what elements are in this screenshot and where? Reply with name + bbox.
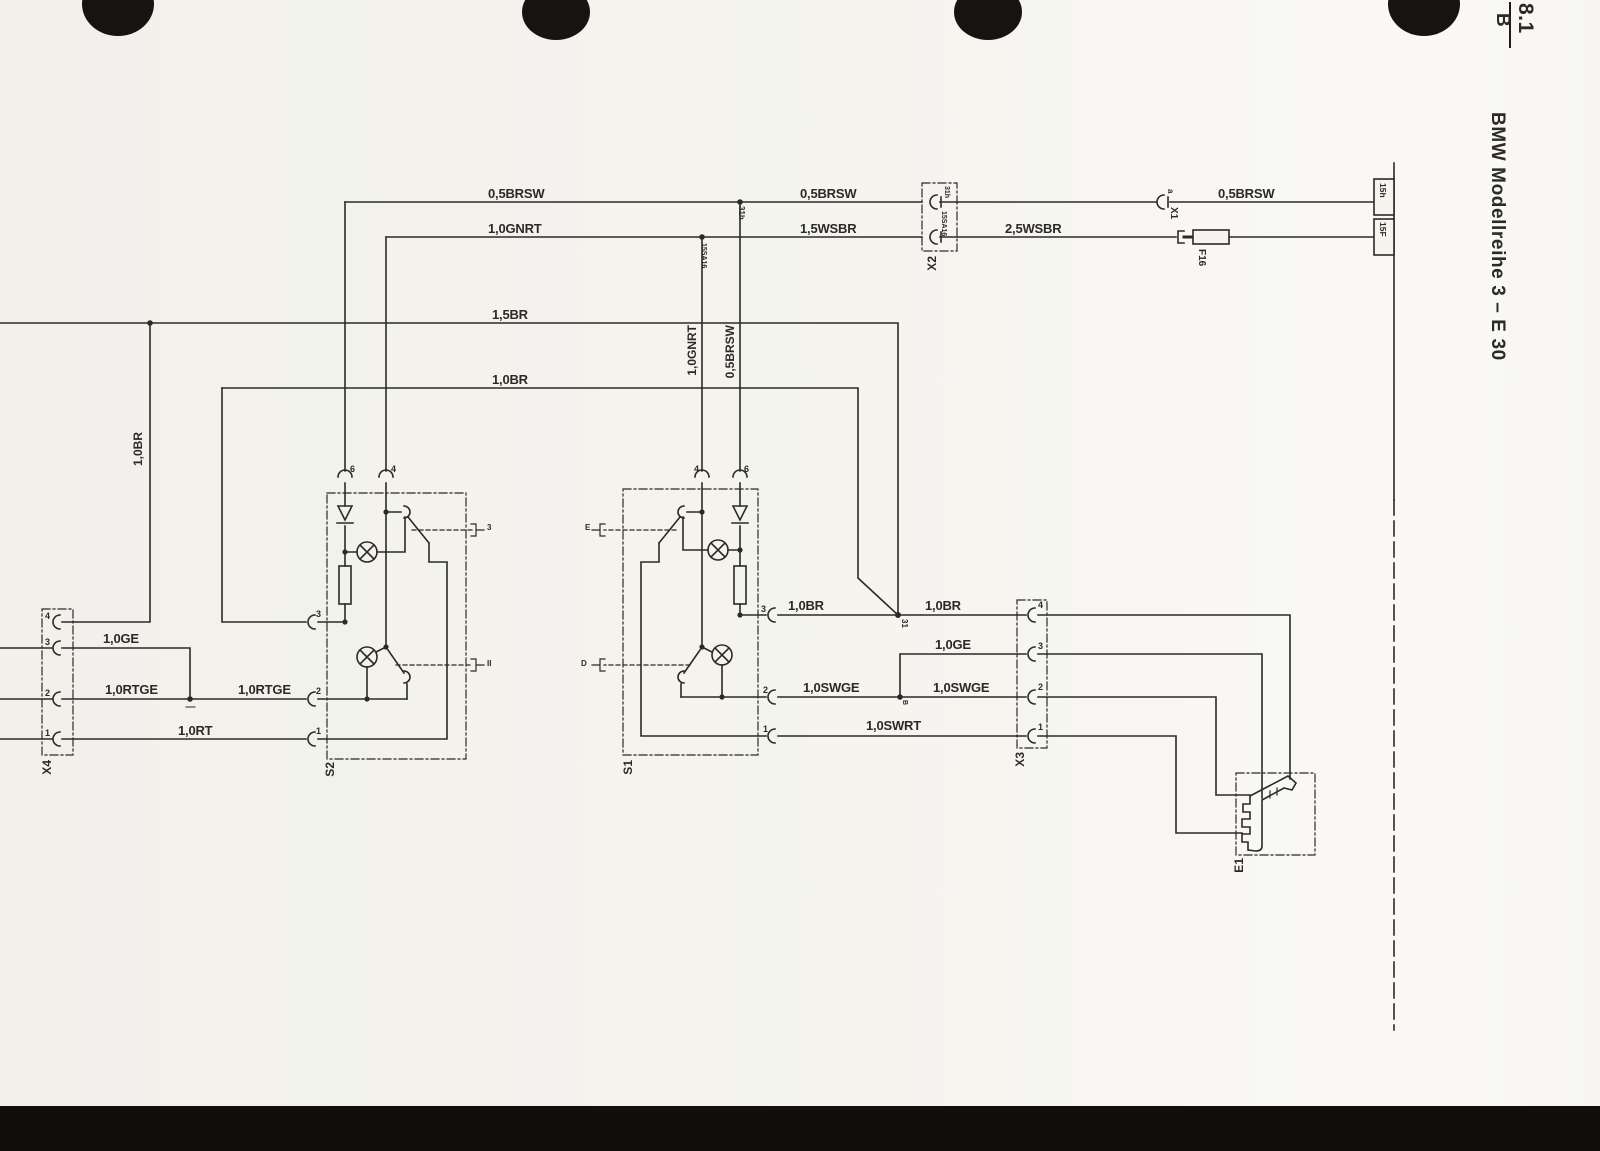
pin-number-x3-2: 2 [1038,682,1043,692]
connector-x3-label: X3 [1013,752,1027,767]
switch-s2-label: S2 [323,762,337,777]
code-15sa16-junction: 15SA16 [700,243,707,268]
wire-label-brsw-2: 0,5BRSW [800,186,856,201]
wire-label-br10-2: 1,0BR [788,598,824,613]
wire-label-br10-3: 1,0BR [925,598,961,613]
pin-number-s2-1: 1 [316,726,321,736]
junction-dots [147,199,903,702]
wire-label-swge-2: 1,0SWGE [933,680,989,695]
switch-position-s2-lower: II [487,659,491,668]
fuse-f16 [1178,230,1229,244]
wire-label-ge-2: 1,0GE [935,637,971,652]
wire-label-gnrt: 1,0GNRT [488,221,542,236]
pin-number-s1-1: 1 [763,724,768,734]
page-section-number: 8.1 [1513,3,1537,34]
pin-number-x4-3: 3 [45,637,50,647]
wire-label-brsw-3: 0,5BRSW [1218,186,1274,201]
code-31-junction: 31 [900,619,909,628]
connector-x2-label: X2 [925,256,939,271]
wire-runs [0,202,1374,833]
pin-number-x4-1: 1 [45,728,50,738]
connector-x1 [1157,195,1168,209]
wire-label-gnrt-riser: 1,0GNRT [685,325,699,376]
wire-label-swge-1: 1,0SWGE [803,680,859,695]
bottom-scan-bar [0,1106,1600,1151]
wire-label-swrt: 1,0SWRT [866,718,921,733]
code-31h-junction: 31h [737,206,746,220]
resistor-icon [734,566,746,604]
diode-icon [732,506,748,523]
pin-number-s2-4: 4 [391,464,396,474]
resistor-icon [339,566,351,604]
wire-label-ge-1: 1,0GE [103,631,139,646]
terminal-15h-label: 15h [1378,183,1388,198]
connector-x4-label: X4 [40,760,54,775]
wire-label-br15: 1,5BR [492,307,528,322]
wire-label-brsw-riser: 0,5BRSW [723,325,737,378]
code-x2-pin-bottom: 15SA16 [940,211,947,236]
page-title: BMW Modellreihe 3 – E 30 [1486,112,1508,361]
wiring-diagram-canvas [0,0,1600,1151]
wire-label-rt: 1,0RT [178,723,212,738]
code-b-junction: B [901,700,908,705]
diode-icon [337,506,353,523]
switch-s1-label: S1 [621,760,635,775]
heater-element-e1 [1236,773,1315,855]
wire-label-rtge-1: 1,0RTGE [105,682,158,697]
switch-s2 [308,470,484,759]
wire-label-br10-1: 1,0BR [492,372,528,387]
pin-number-x3-3: 3 [1038,641,1043,651]
switch-position-s2-upper: 3 [487,523,491,532]
binder-holes [82,0,1460,40]
pin-number-x4-2: 2 [45,688,50,698]
pin-number-s1-2: 2 [763,685,768,695]
wire-label-rtge-2: 1,0RTGE [238,682,291,697]
pin-number-x3-4: 4 [1038,600,1043,610]
page-letter: B [1491,13,1513,27]
fuse-f16-label: F16 [1196,249,1207,266]
pin-number-x3-1: 1 [1038,722,1043,732]
connector-x1-label: X1 [1168,207,1179,219]
switch-s1 [592,470,775,755]
code-x1-pin: a [1166,189,1175,193]
pin-number-s1-3: 3 [761,604,766,614]
wire-label-wsbr25: 2,5WSBR [1005,221,1061,236]
switch-position-s1-lower: D [581,659,587,668]
code-x2-pin-top: 31h [943,186,950,198]
element-e1-label: E1 [1232,858,1246,873]
wire-label-br10-riser: 1,0BR [131,432,145,466]
pin-number-s2-2: 2 [316,686,321,696]
wire-label-wsbr15: 1,5WSBR [800,221,856,236]
terminal-strip-15 [1374,163,1394,1030]
scanned-wiring-diagram-page: 0,5BRSW 0,5BRSW 0,5BRSW 1,0GNRT 1,5WSBR … [0,0,1600,1151]
terminal-15f-label: 15F [1378,222,1388,237]
pin-number-s2-6: 6 [350,464,355,474]
pin-number-x4-4: 4 [45,611,50,621]
wire-label-brsw-1: 0,5BRSW [488,186,544,201]
pin-number-s2-3: 3 [316,609,321,619]
switch-position-s1-upper: E [585,523,590,532]
pin-number-s1-6: 6 [744,464,749,474]
pin-number-s1-4: 4 [694,464,699,474]
